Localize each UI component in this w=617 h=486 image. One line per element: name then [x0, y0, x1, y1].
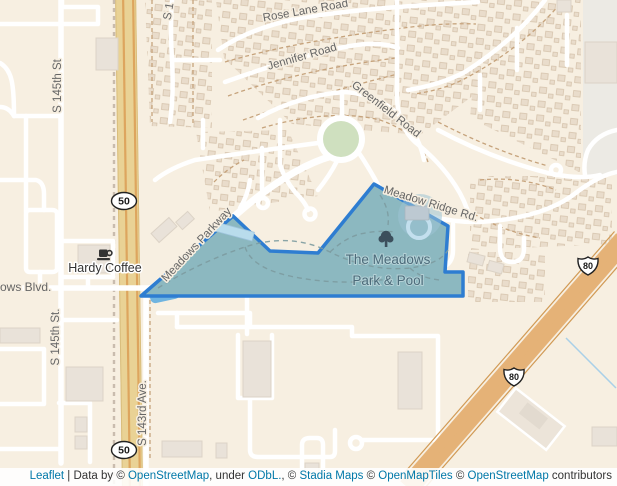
openstreetmap-link[interactable]: OpenStreetMap [128, 470, 209, 482]
attribution-bar: Leaflet | Data by © OpenStreetMap, under… [0, 468, 617, 486]
attribution-text: contributors [549, 470, 612, 482]
roundabout [317, 115, 365, 163]
us50-shield-south: 50 [112, 442, 137, 459]
street-label-s143rd-ave: S 143rd Ave. [137, 380, 149, 446]
svg-text:80: 80 [509, 372, 519, 382]
odbl-link[interactable]: ODbL. [248, 470, 281, 482]
map-canvas[interactable]: 50 50 80 80 Rose Lane Road Jennifer Road… [0, 0, 617, 486]
poi-label-hardy-coffee: Hardy Coffee [68, 261, 141, 275]
coffee-cup-icon [97, 250, 112, 261]
street-label-s145th-north: S 145th St [52, 58, 64, 113]
attribution-text: © [453, 470, 468, 482]
park-label-line1: The Meadows [346, 252, 431, 267]
attribution-text: | Data by © [64, 470, 128, 482]
openstreetmap-contributors-link[interactable]: OpenStreetMap [468, 470, 549, 482]
attribution-text: © [363, 470, 378, 482]
svg-text:50: 50 [118, 196, 130, 208]
attribution-text: , under [209, 470, 248, 482]
map-tiles: 50 50 80 80 Rose Lane Road Jennifer Road… [0, 0, 617, 486]
stadia-maps-link[interactable]: Stadia Maps [299, 470, 363, 482]
park-label-line2: Park & Pool [352, 273, 423, 288]
openmaptiles-link[interactable]: OpenMapTiles [378, 470, 452, 482]
attribution-text: , © [281, 470, 299, 482]
svg-text:80: 80 [583, 261, 593, 271]
street-label-s145th-south: S 145th St. [50, 309, 62, 366]
leaflet-link[interactable]: Leaflet [30, 470, 65, 482]
svg-text:50: 50 [118, 445, 130, 457]
us50-shield-north: 50 [112, 193, 137, 210]
street-label-meadows-blvd: ows Blvd. [0, 280, 51, 294]
